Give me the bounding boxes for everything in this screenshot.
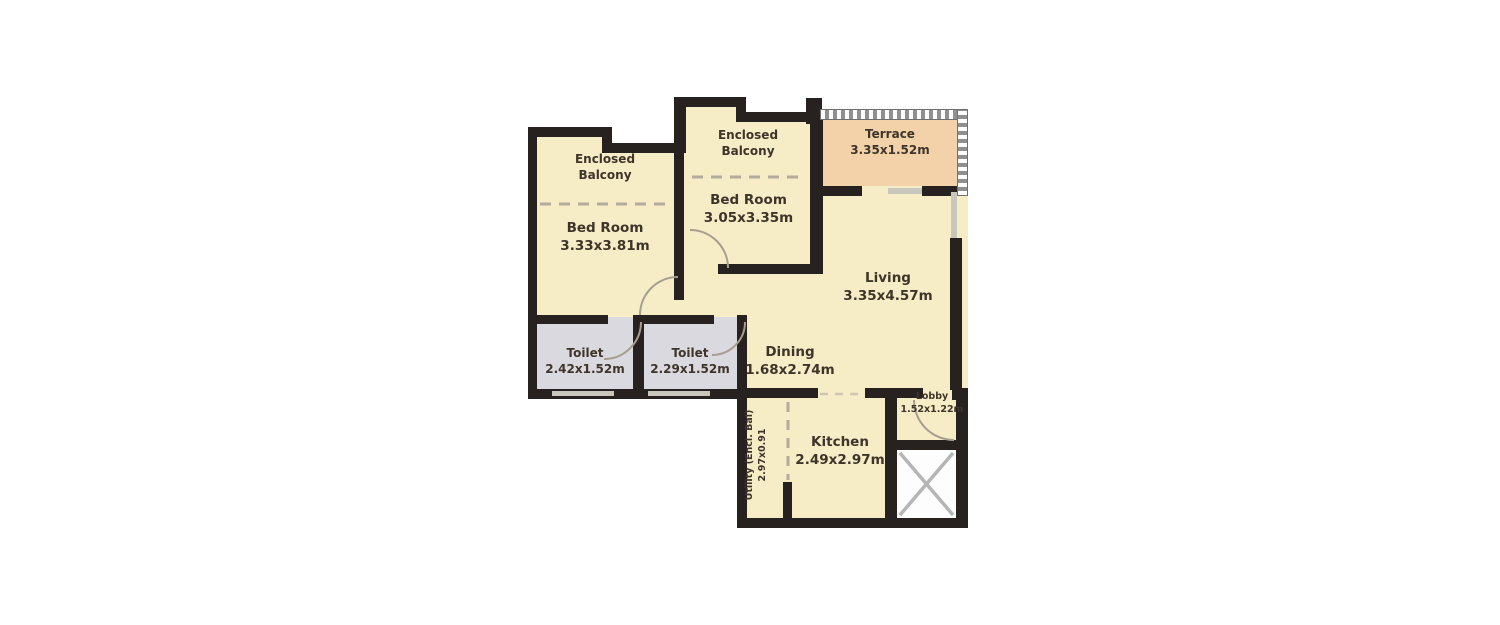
room-label-utility: Utility (Encl. Bal) 2.97x0.91 — [744, 395, 784, 515]
room-name: Living — [823, 270, 953, 288]
room-dims: 3.05x3.35m — [686, 210, 811, 228]
room-label-dining: Dining 1.68x2.74m — [738, 344, 842, 380]
room-dims: 2.42x1.52m — [535, 362, 635, 378]
room-dims: 2.97x0.91 — [757, 395, 770, 515]
room-label-balcony1: Enclosed Balcony — [560, 152, 650, 184]
wall-segment — [674, 143, 684, 300]
wall-segment — [783, 482, 792, 520]
room-dims: 1.68x2.74m — [738, 362, 842, 380]
room-label-terrace: Terrace 3.35x1.52m — [828, 127, 952, 159]
wall-segment — [736, 112, 814, 122]
wall-segment — [536, 315, 608, 324]
wall-segment — [718, 264, 823, 274]
room-label-toilet2: Toilet 2.29x1.52m — [640, 346, 740, 378]
terrace-railing-top — [820, 109, 968, 120]
room-dims: 3.35x1.52m — [828, 143, 952, 159]
room-name: Enclosed Balcony — [560, 152, 650, 184]
room-dims: 2.29x1.52m — [640, 362, 740, 378]
room-name: Dining — [738, 344, 842, 362]
room-name: Bed Room — [686, 192, 811, 210]
terrace-railing-right — [957, 109, 968, 196]
room-name: Bed Room — [540, 220, 670, 238]
wall-segment — [528, 127, 612, 137]
room-name: Toilet — [535, 346, 635, 362]
wall-segment — [737, 518, 968, 528]
room-name: Utility (Encl. Bal) — [744, 395, 757, 515]
room-label-living: Living 3.35x4.57m — [823, 270, 953, 306]
room-name: Kitchen — [783, 434, 897, 452]
room-dims: 1.52x1.22m — [898, 404, 966, 417]
room-dims: 3.33x3.81m — [540, 238, 670, 256]
room-label-kitchen: Kitchen 2.49x2.97m — [783, 434, 897, 470]
room-name: Enclosed Balcony — [703, 128, 793, 160]
window — [552, 391, 614, 396]
sliding-door — [888, 188, 922, 194]
room-label-balcony2: Enclosed Balcony — [703, 128, 793, 160]
room-dims: 2.49x2.97m — [783, 452, 897, 470]
room-label-lobby: Lobby 1.52x1.22m — [898, 391, 966, 416]
room-name: Toilet — [640, 346, 740, 362]
wall-segment — [818, 186, 862, 196]
room-name: Terrace — [828, 127, 952, 143]
room-label-bedroom1: Bed Room 3.33x3.81m — [540, 220, 670, 256]
room-label-bedroom2: Bed Room 3.05x3.35m — [686, 192, 811, 228]
window — [648, 391, 710, 396]
room-name: Lobby — [898, 391, 966, 404]
elevator-shaft — [897, 450, 956, 518]
window — [951, 192, 957, 238]
floor-plan: Enclosed Balcony Bed Room 3.33x3.81m Enc… — [0, 0, 1500, 625]
wall-segment — [644, 315, 714, 324]
room-dims: 3.35x4.57m — [823, 288, 953, 306]
wall-segment — [950, 238, 962, 390]
room-label-toilet1: Toilet 2.42x1.52m — [535, 346, 635, 378]
